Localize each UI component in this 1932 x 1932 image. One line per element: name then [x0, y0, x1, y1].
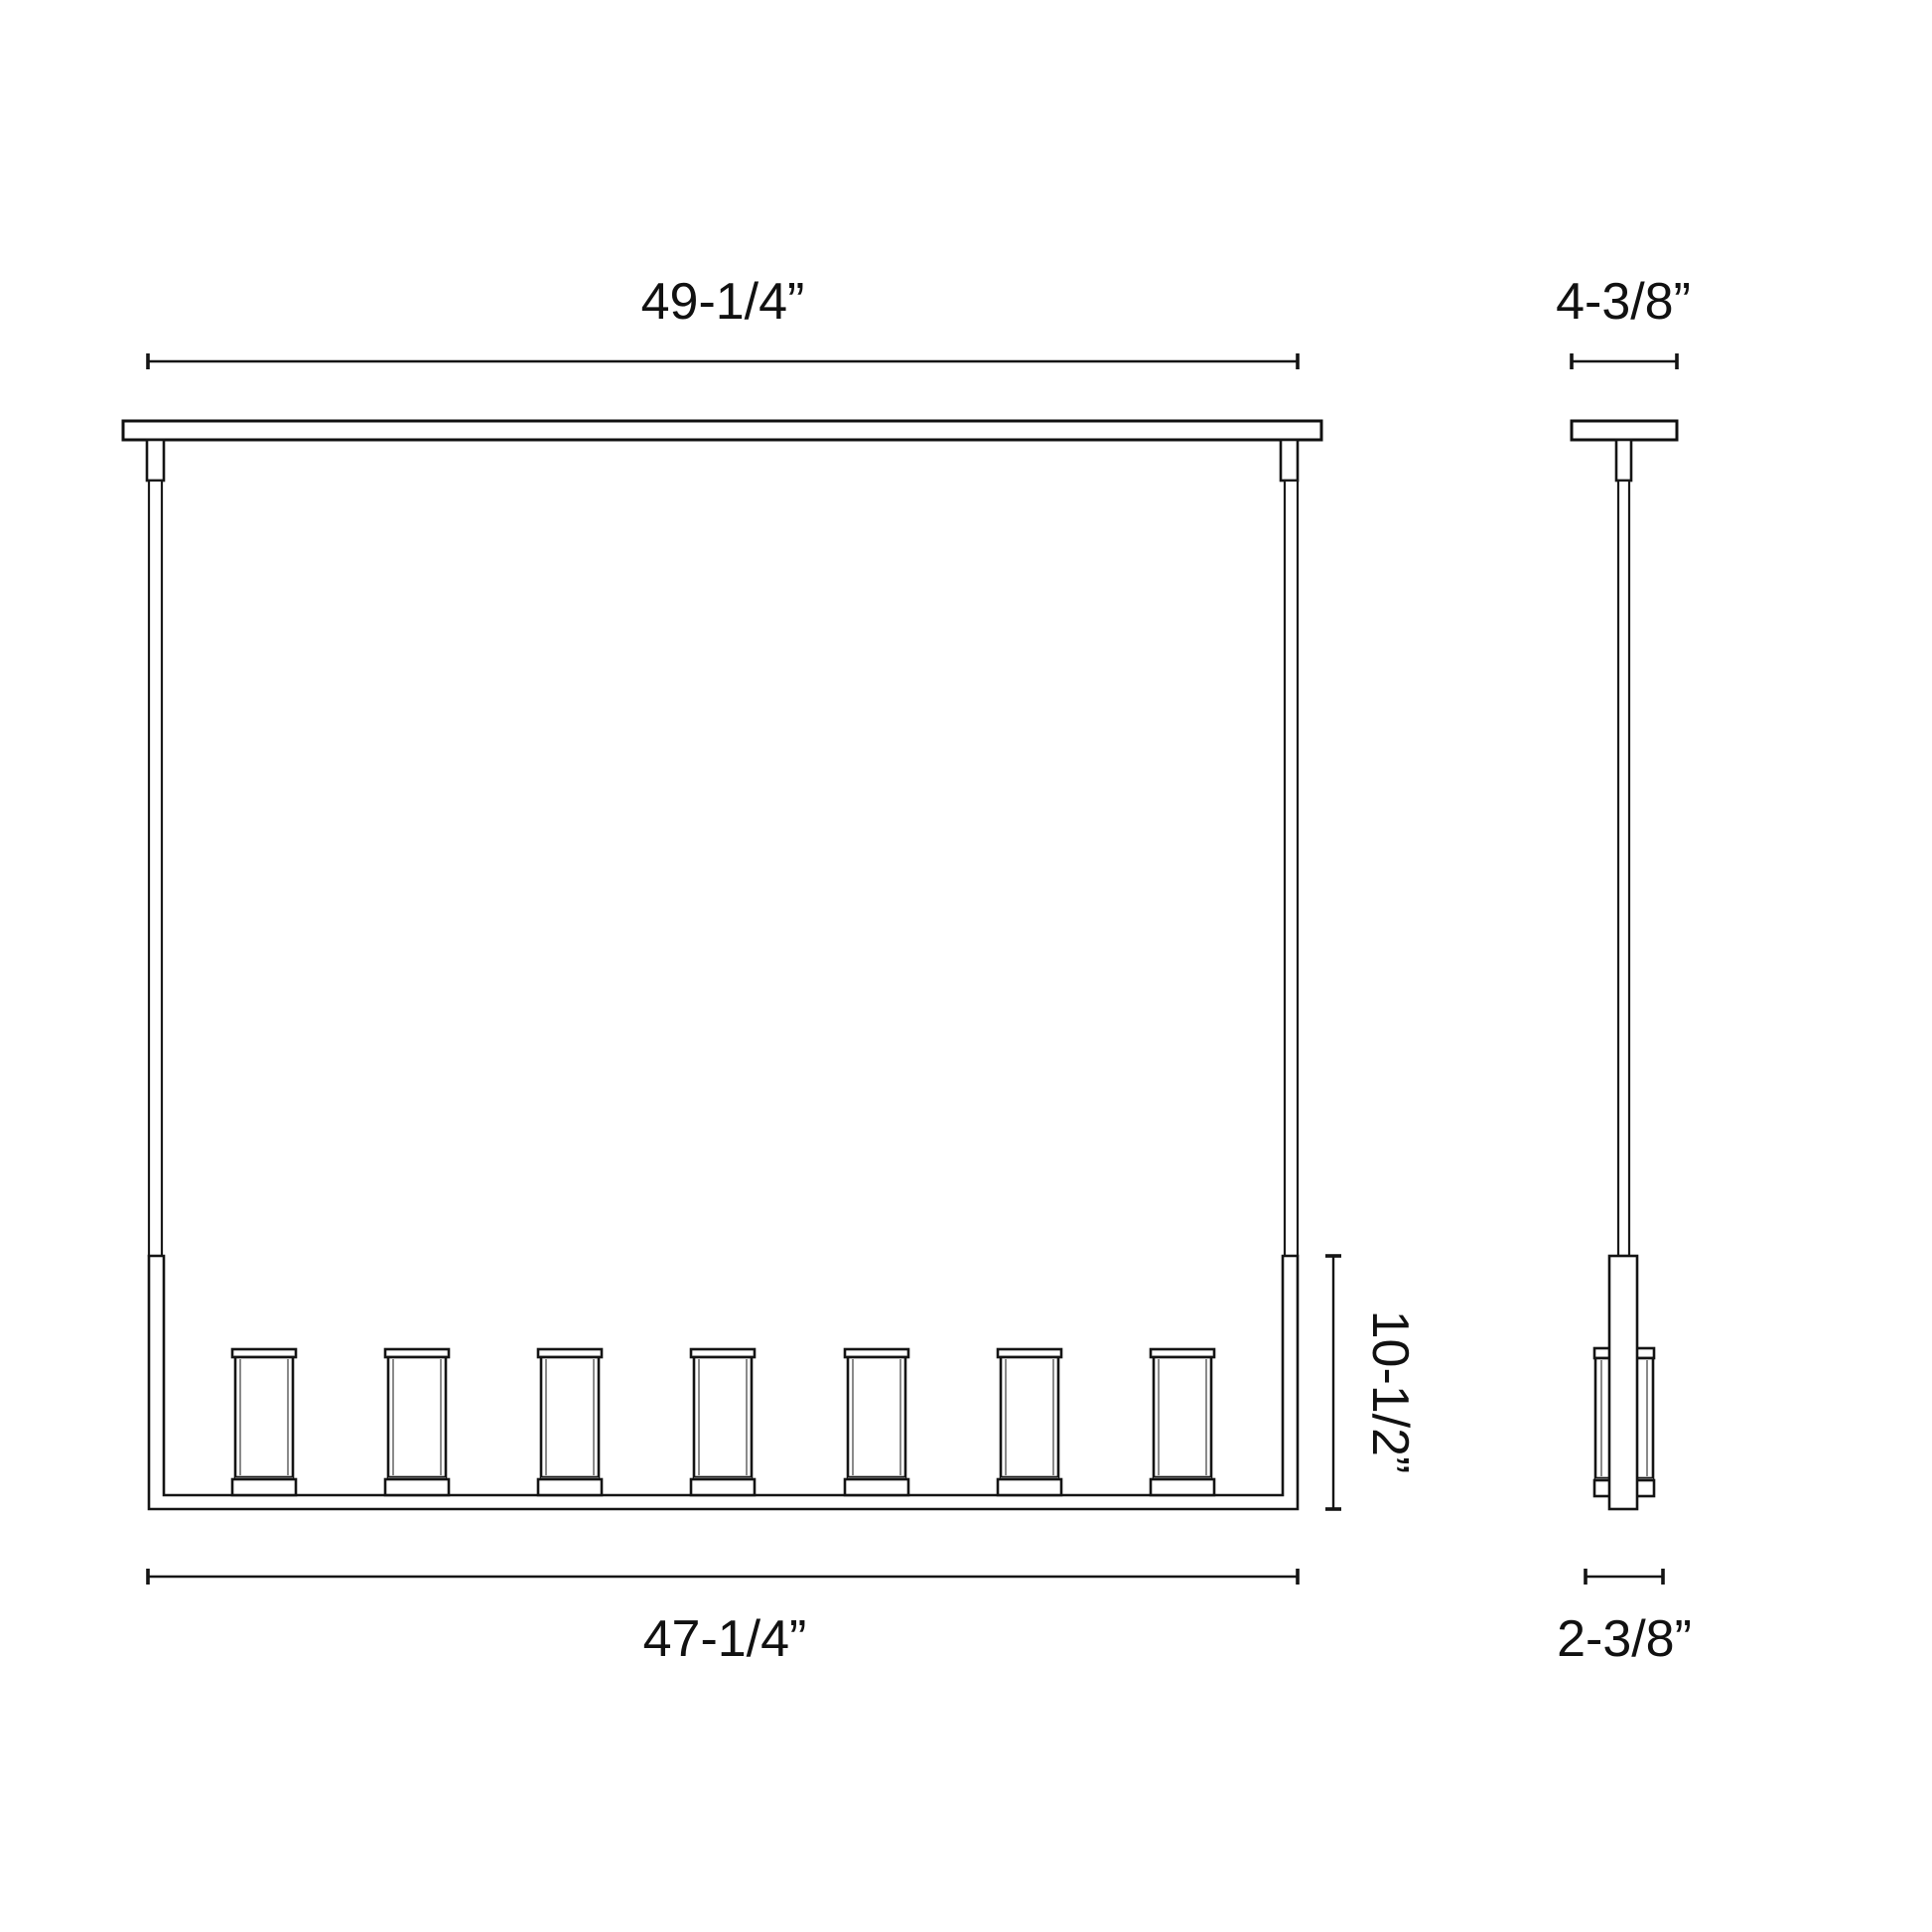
candle-7: [1151, 1349, 1214, 1495]
left-stem-connector: [147, 440, 164, 481]
side-canopy-width-dimension: 4-3/8”: [1556, 273, 1691, 369]
front-candles: [232, 1349, 1214, 1495]
front-frame-width-label: 47-1/4”: [643, 1610, 807, 1668]
right-hanging-rod: [1285, 481, 1298, 1256]
side-canopy-width-label: 4-3/8”: [1556, 273, 1691, 331]
candle-5: [845, 1349, 908, 1495]
front-overall-width-dimension: 49-1/4”: [148, 273, 1298, 369]
candle-1: [232, 1349, 296, 1495]
left-hanging-rod: [149, 481, 162, 1256]
front-frame-width-dimension: 47-1/4”: [148, 1569, 1298, 1668]
front-overall-width-label: 49-1/4”: [641, 273, 805, 331]
front-frame-height-dimension: 10-1/2”: [1325, 1256, 1419, 1509]
right-stem-connector: [1281, 440, 1298, 481]
drawing-canvas: 49-1/4”: [0, 0, 1932, 1932]
side-hanging-rod: [1618, 481, 1629, 1256]
candle-3: [538, 1349, 602, 1495]
side-stem-connector: [1616, 440, 1631, 481]
front-view: 49-1/4”: [123, 273, 1419, 1668]
side-frame-depth-dimension: 2-3/8”: [1557, 1569, 1692, 1668]
candle-6: [998, 1349, 1061, 1495]
candle-2: [385, 1349, 449, 1495]
front-canopy: [123, 421, 1321, 440]
front-frame-height-label: 10-1/2”: [1361, 1311, 1419, 1474]
side-view: 4-3/8”: [1556, 273, 1692, 1668]
dimension-drawing: 49-1/4”: [0, 0, 1932, 1932]
candle-4: [691, 1349, 755, 1495]
side-frame-member: [1609, 1256, 1637, 1509]
side-frame-depth-label: 2-3/8”: [1557, 1610, 1692, 1668]
side-canopy: [1572, 421, 1677, 440]
